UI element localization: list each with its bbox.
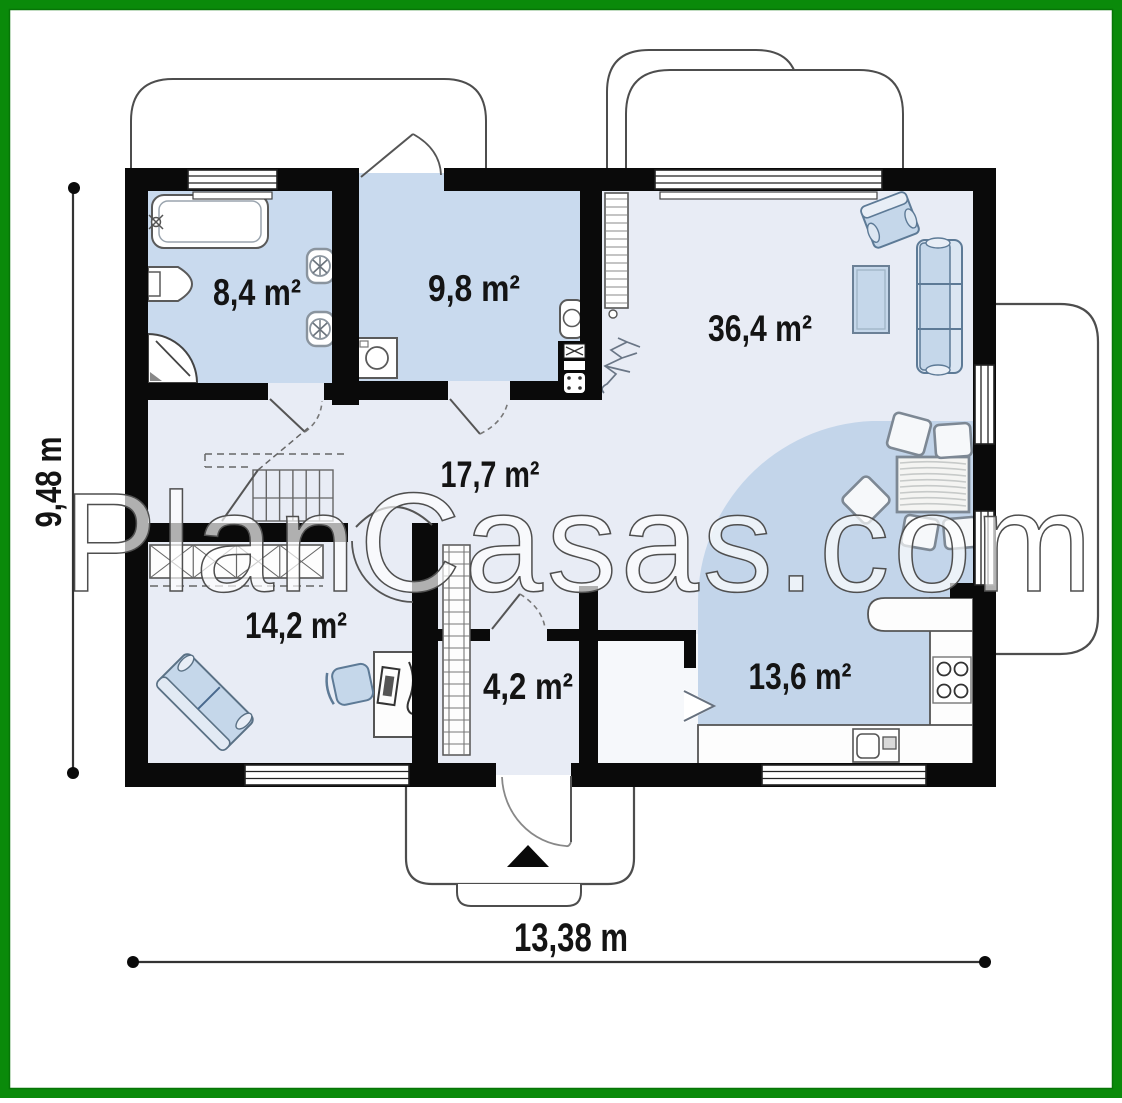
svg-text:9,8 m²: 9,8 m² — [428, 268, 520, 309]
svg-text:8,4 m²: 8,4 m² — [213, 272, 301, 313]
svg-text:9,48 m: 9,48 m — [28, 437, 69, 528]
svg-text:13,38 m: 13,38 m — [514, 916, 628, 960]
svg-text:36,4 m²: 36,4 m² — [708, 308, 812, 349]
svg-text:4,2 m²: 4,2 m² — [483, 666, 573, 707]
svg-text:17,7 m²: 17,7 m² — [441, 454, 540, 495]
svg-text:PlanCasas.com: PlanCasas.com — [63, 463, 1096, 621]
svg-text:13,6 m²: 13,6 m² — [749, 656, 852, 697]
svg-text:14,2 m²: 14,2 m² — [245, 605, 347, 646]
